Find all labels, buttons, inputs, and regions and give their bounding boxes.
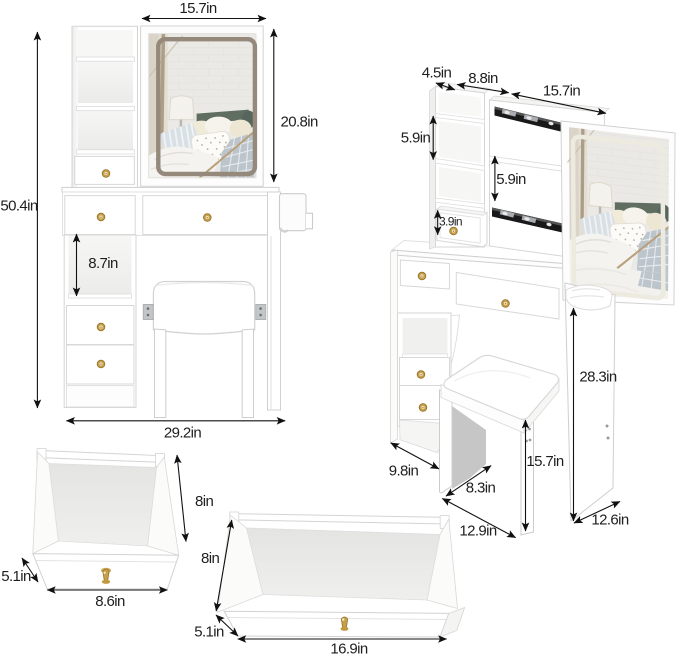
svg-text:15.7in: 15.7in [526,453,564,470]
svg-text:20.8in: 20.8in [281,114,319,131]
svg-text:50.4in: 50.4in [0,198,38,215]
svg-text:5.9in: 5.9in [496,171,526,188]
svg-text:8.3in: 8.3in [466,480,496,497]
svg-text:4.5in: 4.5in [422,65,452,82]
svg-text:15.7in: 15.7in [179,0,217,17]
svg-text:5.1in: 5.1in [1,568,31,585]
svg-text:5.1in: 5.1in [194,624,224,641]
svg-text:28.3in: 28.3in [579,369,617,386]
svg-text:29.2in: 29.2in [164,425,202,442]
svg-text:12.6in: 12.6in [591,512,629,529]
svg-text:8.8in: 8.8in [468,70,498,87]
svg-text:8in: 8in [195,493,213,510]
svg-text:9.8in: 9.8in [389,463,419,480]
svg-text:8.7in: 8.7in [88,255,118,272]
svg-text:8in: 8in [201,550,219,567]
svg-text:12.9in: 12.9in [459,523,497,540]
svg-text:8.6in: 8.6in [95,593,125,610]
svg-text:5.9in: 5.9in [401,130,431,147]
svg-text:15.7in: 15.7in [543,83,581,100]
svg-text:3.9in: 3.9in [439,215,462,229]
svg-text:16.9in: 16.9in [330,641,368,655]
